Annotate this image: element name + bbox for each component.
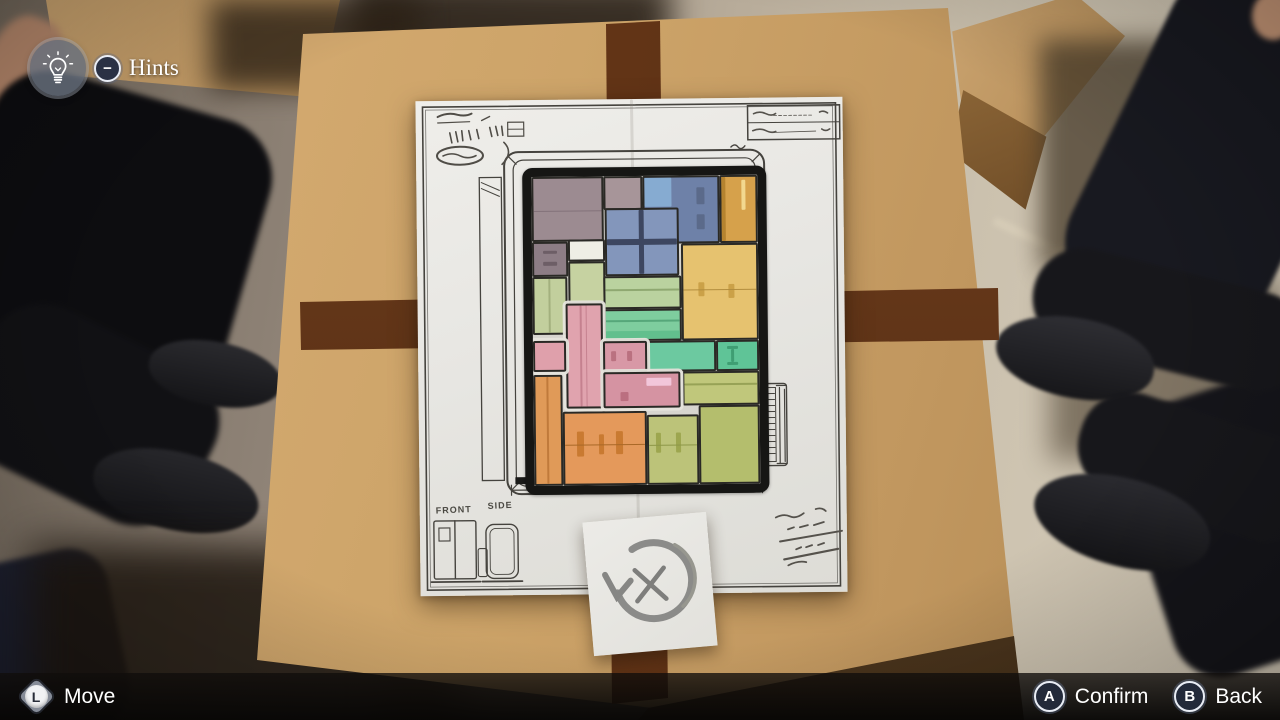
a-button-icon: A — [1034, 681, 1065, 712]
block-detail — [606, 289, 680, 292]
block-detail — [721, 177, 726, 241]
block-yellow-large — [681, 243, 759, 341]
block-pink-handle-box — [603, 341, 647, 372]
minus-glyph: − — [103, 61, 112, 76]
move-label: Move — [64, 685, 115, 709]
hints-control[interactable]: − Hints — [30, 40, 179, 96]
block-pink-wide — [603, 372, 680, 408]
rotate-hint-note — [582, 512, 717, 656]
block-teal-right — [716, 340, 759, 371]
packing-case[interactable] — [522, 166, 769, 496]
block-mauve-light — [604, 176, 643, 210]
back-label: Back — [1215, 685, 1262, 709]
b-button-icon: B — [1174, 681, 1205, 712]
block-detail — [565, 444, 645, 446]
block-detail — [656, 433, 661, 453]
stick-knob: L — [25, 685, 48, 708]
packed-blocks — [531, 175, 760, 486]
block-mint-horiz — [604, 308, 682, 341]
block-white-box — [568, 240, 606, 262]
hints-label: Hints — [129, 55, 179, 81]
block-detail — [607, 239, 676, 245]
block-amber-tall — [719, 175, 758, 243]
block-detail — [676, 433, 681, 453]
block-olive-right — [699, 405, 761, 484]
confirm-control[interactable]: A Confirm — [1034, 681, 1149, 712]
block-green-horiz — [603, 276, 681, 309]
back-control[interactable]: B Back — [1174, 681, 1262, 712]
block-detail — [731, 349, 735, 361]
block-detail — [612, 352, 617, 361]
block-detail — [534, 210, 602, 213]
person-left-boot — [86, 435, 267, 546]
block-olive-mid — [647, 415, 700, 485]
b-letter: B — [1184, 689, 1195, 704]
game-screen: FRONT SIDE — [0, 0, 1280, 720]
a-letter: A — [1044, 689, 1055, 704]
block-pink-left-arm — [533, 340, 566, 371]
block-detail — [628, 351, 633, 360]
side-view-label: SIDE — [487, 500, 512, 511]
block-mauve-drawers — [532, 242, 569, 278]
left-stick-icon: L — [18, 679, 54, 715]
block-teal-mid — [647, 340, 716, 372]
confirm-label: Confirm — [1075, 685, 1149, 709]
block-detail — [586, 305, 588, 406]
block-detail — [684, 289, 757, 291]
block-detail — [728, 362, 738, 365]
block-blue-grid — [605, 208, 679, 277]
block-detail — [685, 383, 758, 386]
block-detail — [616, 431, 623, 454]
block-detail — [697, 214, 705, 229]
control-bar: L Move A Confirm B Back — [0, 673, 1280, 720]
block-detail — [606, 319, 680, 321]
block-mauve-large — [531, 176, 604, 242]
minus-button-icon[interactable]: − — [94, 55, 121, 82]
stick-letter: L — [32, 689, 41, 705]
block-detail — [543, 251, 557, 255]
block-detail — [606, 331, 680, 340]
block-detail — [620, 392, 629, 402]
block-detail — [729, 284, 735, 298]
hint-badge[interactable] — [30, 40, 86, 96]
front-view-label: FRONT — [435, 504, 471, 516]
block-detail — [646, 378, 671, 386]
block-green-below-white — [568, 261, 606, 303]
block-detail — [580, 305, 583, 406]
block-detail — [696, 187, 704, 204]
block-detail — [644, 178, 671, 208]
block-orange-slim — [533, 374, 564, 486]
right-controls: A Confirm B Back — [1034, 681, 1262, 712]
block-detail — [546, 377, 549, 484]
move-control[interactable]: L Move — [18, 679, 115, 715]
block-detail — [549, 279, 551, 332]
block-orange-large — [563, 411, 647, 486]
block-olive-horiz — [682, 371, 759, 406]
block-detail — [543, 262, 557, 266]
lightbulb-icon — [41, 51, 75, 85]
block-pink-upright — [565, 303, 603, 408]
rotate-crossed-icon — [582, 512, 717, 656]
block-detail — [741, 179, 746, 210]
block-green-left — [532, 277, 568, 335]
